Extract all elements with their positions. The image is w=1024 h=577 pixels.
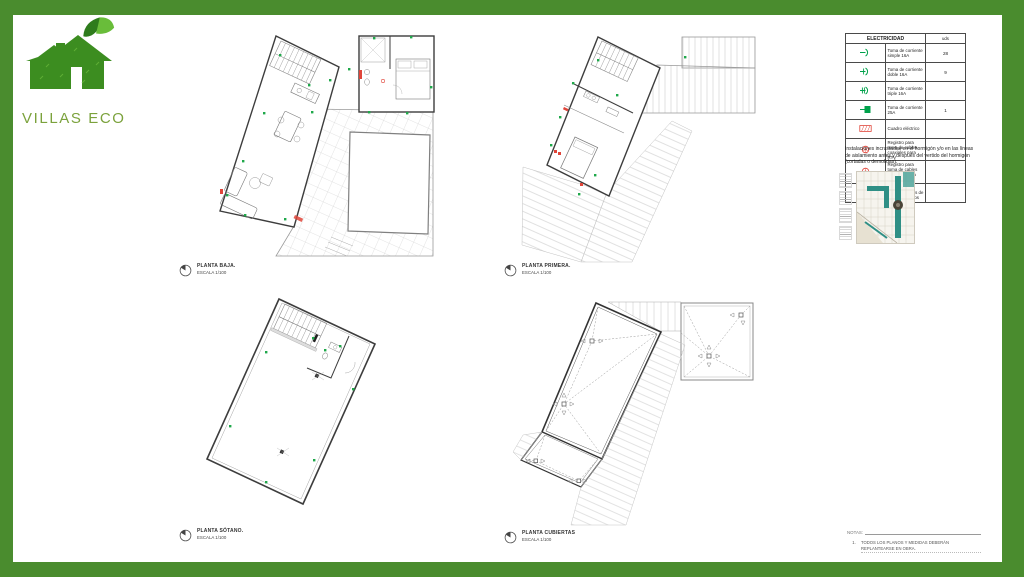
planta-baja-drawing <box>197 25 437 263</box>
plan-title: PLANTA BAJA. <box>197 264 236 270</box>
plan-scale: ESCALA 1/100 <box>522 537 575 542</box>
note-item: 1. TODOS LOS PLANOS Y MEDIDAS DEBERÁN RE… <box>847 540 981 553</box>
plan-scale: ESCALA 1/100 <box>197 270 236 275</box>
conduit-detail-photo <box>856 171 915 244</box>
legend-count <box>926 120 966 139</box>
plan-title: PLANTA PRIMERA. <box>522 264 571 270</box>
legend-count: 1 <box>926 101 966 120</box>
legend-count <box>926 82 966 101</box>
socket-single-icon <box>846 44 886 63</box>
eco-house-icon <box>16 17 132 109</box>
plan-title: PLANTA SÓTANO. <box>197 529 243 535</box>
legend-label: Toma de corriente triple 16A <box>886 82 926 101</box>
north-compass-icon <box>179 264 192 277</box>
plan-title: PLANTA CUBIERTAS <box>522 531 575 537</box>
socket-double-icon <box>846 63 886 82</box>
electrical-panel-icon <box>846 120 886 139</box>
planta-primera-drawing <box>520 25 765 265</box>
planta-cubiertas-drawing <box>513 290 765 527</box>
legend-title: ELECTRICIDAD <box>846 34 926 44</box>
legend-label: Toma de corriente simple 16A <box>886 44 926 63</box>
note-number: 1. <box>847 540 861 553</box>
legend-count <box>926 183 966 202</box>
notes-box: NOTAS: 1. TODOS LOS PLANOS Y MEDIDAS DEB… <box>847 530 981 553</box>
legend-count: 28 <box>926 44 966 63</box>
plan-scale: ESCALA 1/100 <box>522 270 571 275</box>
north-compass-icon <box>179 529 192 542</box>
north-compass-icon <box>504 531 517 544</box>
legend-header-row: ELECTRICIDAD uds <box>846 34 966 44</box>
planta-sotano-drawing <box>197 292 377 524</box>
socket-triple-icon <box>846 82 886 101</box>
logo-text: VILLAS ECO <box>22 110 132 127</box>
plan-scale: ESCALA 1/100 <box>197 535 243 540</box>
legend-row: Toma de corriente doble 16A9 <box>846 63 966 82</box>
legend-row: Cuadro eléctrico <box>846 120 966 139</box>
legend-row: Toma de corriente 25A1 <box>846 101 966 120</box>
villas-eco-logo: VILLAS ECO <box>16 17 132 133</box>
legend-label: Toma de corriente doble 16A <box>886 63 926 82</box>
legend-row: Toma de corriente simple 16A28 <box>846 44 966 63</box>
legend-label: Cuadro eléctrico <box>886 120 926 139</box>
north-compass-icon <box>504 264 517 277</box>
caption-planta-primera: PLANTA PRIMERA. ESCALA 1/100 <box>504 264 571 277</box>
legend-label: Toma de corriente 25A <box>886 101 926 120</box>
legend-units-header: uds <box>926 34 966 44</box>
notes-header: NOTAS: <box>847 530 863 535</box>
installation-note: Instalaciones incrustadas en el hormigón… <box>845 146 976 166</box>
caption-planta-baja: PLANTA BAJA. ESCALA 1/100 <box>179 264 236 277</box>
caption-planta-sotano: PLANTA SÓTANO. ESCALA 1/100 <box>179 529 243 542</box>
legend-count: 9 <box>926 63 966 82</box>
drawing-sheet-page: VILLAS ECO <box>0 0 1024 577</box>
notes-rule <box>865 534 981 535</box>
note-text: TODOS LOS PLANOS Y MEDIDAS DEBERÁN REPLA… <box>861 540 981 553</box>
legend-row: Toma de corriente triple 16A <box>846 82 966 101</box>
caption-planta-cubiertas: PLANTA CUBIERTAS ESCALA 1/100 <box>504 531 575 544</box>
detail-spec-text-strip <box>839 173 852 240</box>
socket-25a-icon <box>846 101 886 120</box>
